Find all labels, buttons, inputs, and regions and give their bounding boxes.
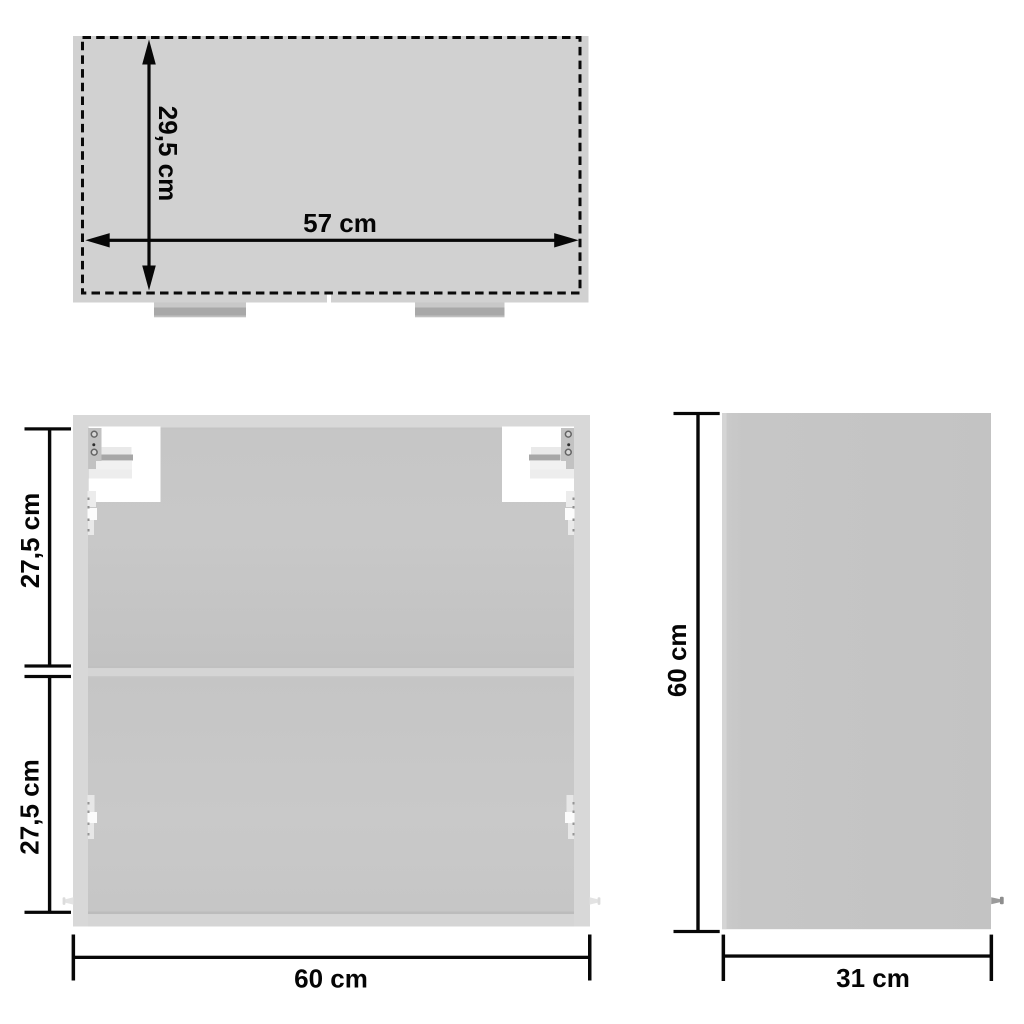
svg-text:27,5 cm: 27,5 cm (15, 493, 45, 588)
svg-text:60 cm: 60 cm (294, 964, 368, 994)
svg-text:31 cm: 31 cm (836, 963, 910, 993)
svg-text:57 cm: 57 cm (303, 208, 377, 238)
svg-text:27,5 cm: 27,5 cm (15, 759, 45, 854)
svg-text:29,5 cm: 29,5 cm (153, 106, 183, 201)
svg-text:60 cm: 60 cm (662, 623, 692, 697)
